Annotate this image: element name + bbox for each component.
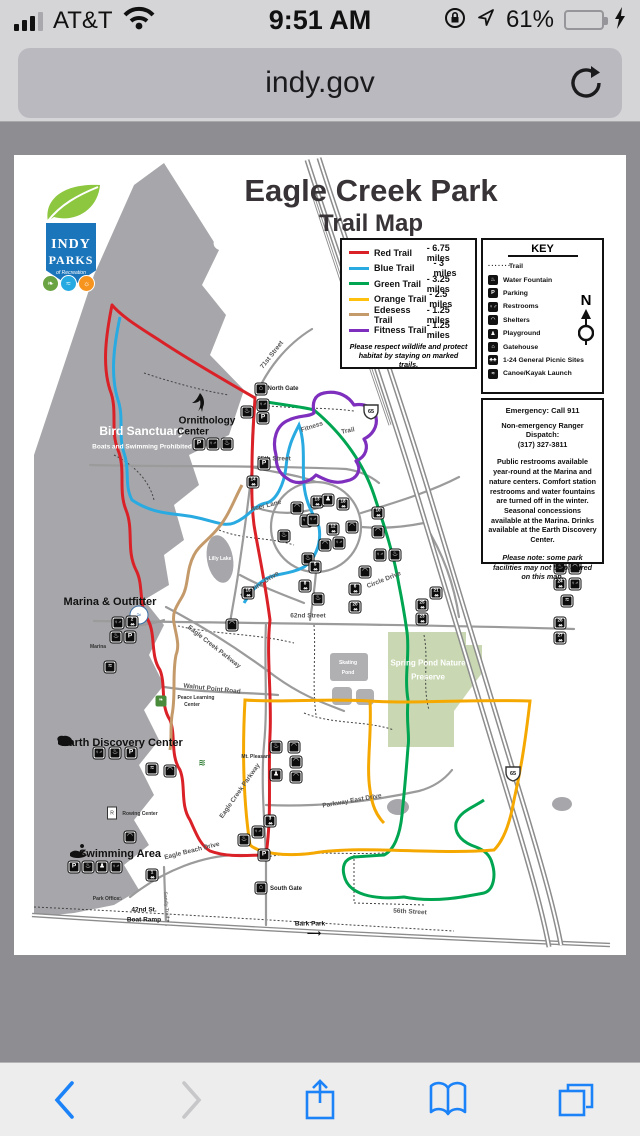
trail-map-document: 65 65 INDY PARKS [14,155,626,955]
map-icon-wc: ♀♂ [334,538,345,549]
map-icon-pic: 1♣♣ [147,870,158,881]
map-icon-shelter: ◠ [360,567,371,578]
map-icon-shelter: ◠ [289,742,300,753]
trail-legend: Red Trail- 6.75 milesBlue Trail- 3 miles… [340,238,477,369]
trail-color-chip [349,298,369,301]
trail-color-chip [349,282,369,285]
back-button[interactable] [34,1073,94,1127]
key-row: ♨Water Fountain [488,273,597,286]
map-icon-pic: 26♣♣ [555,618,566,629]
nature-preserve-area [388,632,482,747]
key-label: Restrooms [503,303,539,310]
map-subtitle: Trail Map [171,210,571,238]
browser-top-chrome: AT&T 9:51 AM [0,0,640,122]
map-icon-pic: 14♣♣ [248,477,259,488]
reload-button[interactable] [566,63,606,103]
canoe-key-icon: ≈ [488,369,498,379]
map-label: Mt. Pleasant [241,754,270,760]
pic-key-icon: ♣♣ [488,355,498,365]
map-label: 62nd Street [290,613,325,620]
map-label: Pond [342,670,355,676]
map-label: North Gate [267,386,298,392]
map-icon-wf: ♨ [271,742,282,753]
map-icon-wf: ♨ [242,407,253,418]
key-label: Playground [503,330,540,337]
logo-dot-orange: ☼ [78,275,95,292]
map-icon-P: P [126,748,137,759]
legend-note: Please respect wildlife and protecthabit… [349,342,468,369]
map-label: Center [184,702,200,708]
shelter-key-icon: ◠ [488,315,498,325]
trail-name: Edesess Trail [374,305,427,325]
map-label: Center [177,427,209,438]
map-icon-pic: 5♣♣ [310,562,321,573]
map-label: South Gate [270,886,302,892]
map-label: Boats and Swimming Prohibited [92,444,192,451]
trail-color-chip [349,251,369,254]
forward-button[interactable] [162,1073,222,1127]
map-icon-pic: 2♣♣ [127,617,138,628]
map-icon-shelter: ◠ [227,620,238,631]
logo-dot-green: ❧ [42,275,59,292]
location-arrow-icon [476,8,496,33]
key-label: Parking [503,290,528,297]
map-icon-P: P [194,439,205,450]
map-title: Eagle Creek Park [171,173,571,209]
map-icon-pic: 23♣♣ [417,614,428,625]
gate-key-icon: ⌂ [488,342,498,352]
battery-percent-label: 61% [506,6,554,34]
map-icon-pic: 15♣♣ [243,588,254,599]
key-row: ·······Trail [488,260,597,273]
map-icon-shelter: ◠ [347,522,358,533]
map-label: ↓ [166,914,171,925]
charging-bolt-icon [614,7,626,34]
trail-color-chip [349,329,369,332]
P-key-icon: P [488,288,498,298]
map-icon-P: P [259,850,270,861]
interstate-shield-icon: 65 [364,405,378,419]
trail-name: Fitness Trail [374,325,427,335]
map-icon-pic: 8♣♣ [300,581,311,592]
map-label: Ornithology [179,416,236,427]
map-icon-wf: ♨ [313,594,324,605]
map-icon-wc: ♀♂ [113,618,124,629]
page-background: 65 65 INDY PARKS [0,123,640,1062]
key-row: ≈Canoe/Kayak Launch [488,367,597,380]
map-label: Skating [339,660,357,666]
map-icon-P: P [69,862,80,873]
url-bar[interactable]: indy.gov [18,48,622,118]
play-key-icon: ♟ [488,329,498,339]
map-icon-canoe: ≈ [562,596,573,607]
map-icon-shelter: ◠ [125,832,136,843]
key-label: Gatehouse [503,344,538,351]
map-icon-canoe: ≈ [147,764,158,775]
fish-hatchery-mark: ≋ [198,758,206,769]
map-icon-wf: ♨ [390,550,401,561]
url-text: indy.gov [265,66,375,100]
map-icon-wc: ♀♂ [375,550,386,561]
peace-learning-center-logo: ❧ [156,696,167,707]
orientation-lock-icon [444,7,466,34]
map-label: Marina & Outfitter [64,596,157,608]
map-icon-wf: ♨ [279,531,290,542]
trail-name: Red Trail [374,248,427,258]
status-bar: AT&T 9:51 AM [0,0,640,40]
map-icon-play: ♟ [323,495,334,506]
map-icon-pic: 21♣♣ [431,588,442,599]
trail-key-icon: ······· [488,263,504,270]
map-label: Preserve [411,673,445,682]
map-icon-wf: ♨ [222,439,233,450]
safari-toolbar [0,1062,640,1136]
map-label: Earth Discovery Center [61,737,183,749]
map-key: KEY ·······Trail♨Water FountainPParking♀… [481,238,604,394]
map-icon-P: P [125,632,136,643]
map-icon-shelter: ◠ [373,527,384,538]
trail-name: Blue Trail [374,263,433,273]
key-row: ♣♣1-24 General Picnic Sites [488,354,597,367]
tabs-button[interactable] [546,1073,606,1127]
key-label: Shelters [503,317,530,324]
orange-trail-spur [369,701,384,823]
map-icon-wc: ♀♂ [111,862,122,873]
map-label: ⟶ [307,929,321,940]
map-icon-pic: 12♣♣ [328,524,339,535]
logo-text-parks: PARKS [46,253,96,268]
legend-row: Fitness Trail- 1.25 miles [349,323,468,339]
map-icon-wf: ♨ [239,835,250,846]
map-label: Boat Ramp [127,917,161,924]
trail-name: Green Trail [374,279,427,289]
map-icon-pic: 18♣♣ [338,499,349,510]
map-label: Spring Pond Nature [390,659,465,668]
key-title: KEY [508,243,578,257]
leaf-icon [40,179,106,229]
map-icon-pic: 20♣♣ [350,602,361,613]
map-icon-wf: ♨ [110,748,121,759]
emergency-line: Emergency: Call 911 [488,406,597,415]
north-compass: N [578,292,594,352]
map-icon-shelter: ◠ [291,757,302,768]
map-icon-shelter: ◠ [291,772,302,783]
trail-color-chip [349,313,369,316]
map-icon-P: P [258,413,269,424]
trail-miles: - 1.25 miles [427,320,468,340]
map-icon-wc: ♀♂ [253,827,264,838]
map-icon-play: ♟ [271,770,282,781]
key-label: Water Fountain [503,277,552,284]
map-icon-shelter: ◠ [320,540,331,551]
map-icon-pic: 13♣♣ [312,497,323,508]
battery-icon [564,10,604,30]
trail-name: Orange Trail [374,294,429,304]
map-icon-wf: ♨ [111,632,122,643]
restrooms-paragraph: Public restrooms available year-round at… [488,457,597,544]
map-icon-pic: 3♣♣ [265,816,276,827]
map-label: 42nd St. [131,907,156,914]
map-label: Lilly Lake [209,556,232,562]
map-icon-pic: 6♣♣ [350,584,361,595]
facilities-note: Please note: some park facilities may no… [488,553,597,582]
share-button[interactable] [290,1073,350,1127]
logo-dot-blue: ≈ [60,275,77,292]
map-icon-pic: 10♣♣ [373,508,384,519]
map-icon-wc: ♀♂ [308,515,319,526]
map-icon-gate: ⌂ [256,384,267,395]
map-icon-wc: ♀♂ [258,400,269,411]
iphone-screen: AT&T 9:51 AM [0,0,640,1136]
map-label: Marina [90,644,106,650]
map-label: Rowing Center [122,811,157,817]
map-icon-pic: 25♣♣ [417,600,428,611]
park-info-box: Emergency: Call 911 Non-emergency Ranger… [481,398,604,564]
map-icon-pic: 27♣♣ [555,633,566,644]
map-icon-shelter: ◠ [165,766,176,777]
map-icon-canoe: ≈ [105,662,116,673]
interstate-shield-icon: 65 [506,767,520,781]
wc-key-icon: ♀♂ [488,302,498,312]
map-label: Bird Sanctuary [99,424,184,438]
map-icon-gate: ⌂ [256,883,267,894]
map-icon-play: ♟ [97,862,108,873]
svg-text:65: 65 [510,771,516,777]
map-icon-shelter: ◠ [292,503,303,514]
trail-color-chip [349,267,369,270]
map-icon-P: P [259,459,270,470]
rowing-center-logo: R [107,807,117,820]
map-label: Swimming Area [79,848,161,860]
map-label: Park Office [93,896,119,902]
wf-key-icon: ♨ [488,275,498,285]
indy-parks-logo: INDY PARKS of Recreation ❧ ≈ ☼ [40,179,112,319]
map-icon-wc: ♀♂ [94,748,105,759]
map-icon-wf: ♨ [83,862,94,873]
bookmarks-button[interactable] [418,1073,478,1127]
map-label: Peace Learning [178,695,215,701]
map-icon-wc: ♀♂ [208,439,219,450]
key-label: Trail [509,263,523,270]
svg-text:65: 65 [368,409,374,415]
key-label: Canoe/Kayak Launch [503,370,572,377]
map-label: Bark Park [295,921,325,928]
key-label: 1-24 General Picnic Sites [503,357,584,364]
ranger-dispatch-line: Non-emergency Ranger Dispatch:(317) 327-… [488,421,597,449]
logo-text-indy: INDY [46,237,96,253]
